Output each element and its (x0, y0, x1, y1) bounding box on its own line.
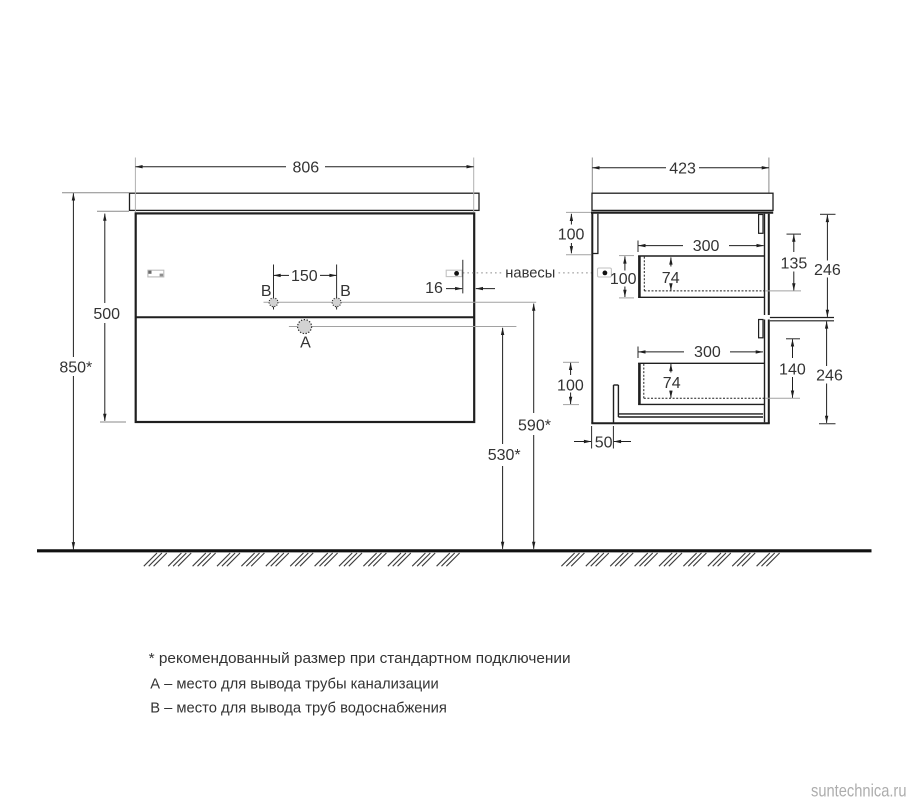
svg-text:16: 16 (425, 280, 443, 297)
svg-text:74: 74 (663, 375, 681, 392)
svg-text:300: 300 (693, 238, 720, 255)
svg-text:А: А (300, 335, 311, 352)
svg-text:590*: 590* (518, 418, 551, 435)
svg-text:suntechnica.ru: suntechnica.ru (811, 780, 907, 800)
svg-text:530*: 530* (488, 447, 521, 464)
svg-text:В – место для вывода труб водо: В – место для вывода труб водоснабжения (150, 700, 447, 717)
svg-text:В: В (261, 283, 272, 300)
svg-text:навесы: навесы (505, 264, 555, 281)
svg-text:423: 423 (669, 160, 696, 177)
svg-text:* рекомендованный размер при с: * рекомендованный размер при стандартном… (149, 650, 571, 667)
svg-text:135: 135 (781, 256, 808, 273)
svg-text:А – место для вывода трубы кан: А – место для вывода трубы канализации (150, 676, 439, 693)
svg-text:100: 100 (558, 227, 585, 244)
svg-text:246: 246 (814, 262, 841, 279)
svg-text:50: 50 (595, 434, 613, 451)
svg-text:140: 140 (779, 361, 806, 378)
svg-text:100: 100 (557, 377, 584, 394)
svg-text:100: 100 (610, 271, 637, 288)
svg-text:850*: 850* (59, 359, 92, 376)
svg-text:74: 74 (662, 270, 680, 287)
svg-text:246: 246 (816, 368, 843, 385)
svg-text:300: 300 (694, 344, 721, 361)
svg-text:500: 500 (93, 306, 120, 323)
svg-text:806: 806 (292, 159, 319, 176)
svg-text:В: В (340, 283, 351, 300)
svg-text:150: 150 (291, 268, 318, 285)
